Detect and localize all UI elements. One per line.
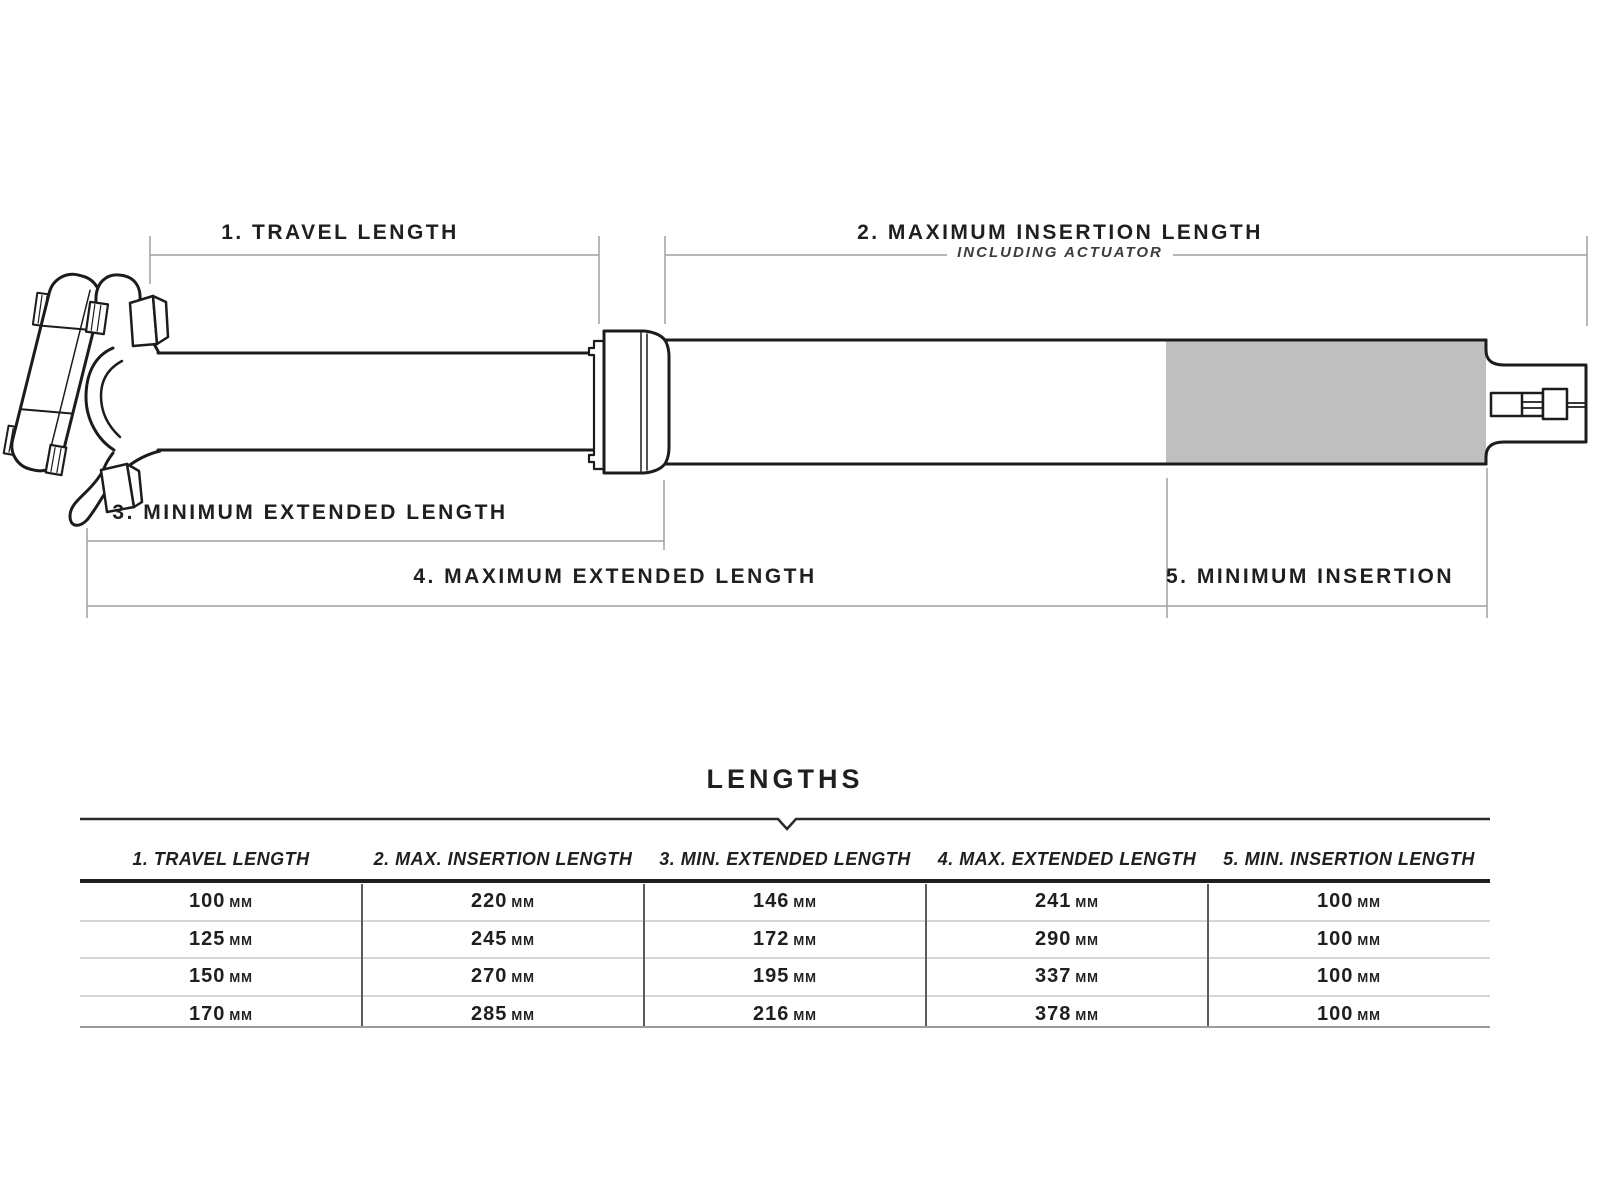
cell: 100MM <box>1208 965 1490 988</box>
col-header-max-insertion: 2. MAX. INSERTION LENGTH <box>362 849 644 870</box>
cell: 172MM <box>644 928 926 951</box>
cell: 245MM <box>362 928 644 951</box>
cell: 241MM <box>926 890 1208 913</box>
seatpost-illustration <box>4 269 1586 525</box>
label-including-actuator: INCLUDING ACTUATOR <box>810 244 1310 262</box>
label-max-extended-length: 4. MAXIMUM EXTENDED LENGTH <box>340 565 890 589</box>
cell: 220MM <box>362 890 644 913</box>
collar <box>589 331 669 473</box>
label-max-insertion-length: 2. MAXIMUM INSERTION LENGTH <box>810 221 1310 245</box>
table-bottom-rule <box>80 1026 1490 1028</box>
table-column-separator <box>643 884 645 1026</box>
cell: 290MM <box>926 928 1208 951</box>
cell: 125MM <box>80 928 362 951</box>
cell: 285MM <box>362 1003 644 1026</box>
col-header-max-extended: 4. MAX. EXTENDED LENGTH <box>926 849 1208 870</box>
insertion-zone-shading <box>1166 342 1486 463</box>
table-column-separator <box>1207 884 1209 1026</box>
label-min-insertion: 5. MINIMUM INSERTION <box>1110 565 1510 589</box>
table-column-separator <box>361 884 363 1026</box>
cell: 100MM <box>80 890 362 913</box>
cell: 337MM <box>926 965 1208 988</box>
cell: 195MM <box>644 965 926 988</box>
table-header-rule <box>80 879 1490 883</box>
label-travel-length: 1. TRAVEL LENGTH <box>160 221 520 245</box>
collar-body <box>604 331 669 473</box>
table-row: 100MM 220MM 146MM 241MM 100MM <box>80 884 1490 922</box>
cell: 100MM <box>1208 890 1490 913</box>
col-header-min-insertion: 5. MIN. INSERTION LENGTH <box>1208 849 1490 870</box>
table-body: 100MM 220MM 146MM 241MM 100MM 125MM 245M… <box>80 884 1490 1032</box>
cell: 150MM <box>80 965 362 988</box>
label-min-extended-length: 3. MINIMUM EXTENDED LENGTH <box>90 501 530 525</box>
upper-tube <box>158 353 606 450</box>
cell: 100MM <box>1208 928 1490 951</box>
bolt-head-side <box>153 296 168 344</box>
cell: 270MM <box>362 965 644 988</box>
cell: 216MM <box>644 1003 926 1026</box>
saddle-clamp-head <box>4 269 168 525</box>
table-title: LENGTHS <box>80 764 1490 795</box>
table-column-separator <box>925 884 927 1026</box>
cell: 378MM <box>926 1003 1208 1026</box>
table-row: 125MM 245MM 172MM 290MM 100MM <box>80 922 1490 960</box>
cell: 170MM <box>80 1003 362 1026</box>
table-header-row: 1. TRAVEL LENGTH 2. MAX. INSERTION LENGT… <box>80 849 1490 870</box>
table-row: 150MM 270MM 195MM 337MM 100MM <box>80 959 1490 997</box>
table-top-rule <box>80 817 1490 833</box>
dropper-post-spec-infographic: 1. TRAVEL LENGTH 2. MAXIMUM INSERTION LE… <box>0 0 1600 1200</box>
col-header-travel: 1. TRAVEL LENGTH <box>80 849 362 870</box>
col-header-min-extended: 3. MIN. EXTENDED LENGTH <box>644 849 926 870</box>
cell: 100MM <box>1208 1003 1490 1026</box>
cell: 146MM <box>644 890 926 913</box>
